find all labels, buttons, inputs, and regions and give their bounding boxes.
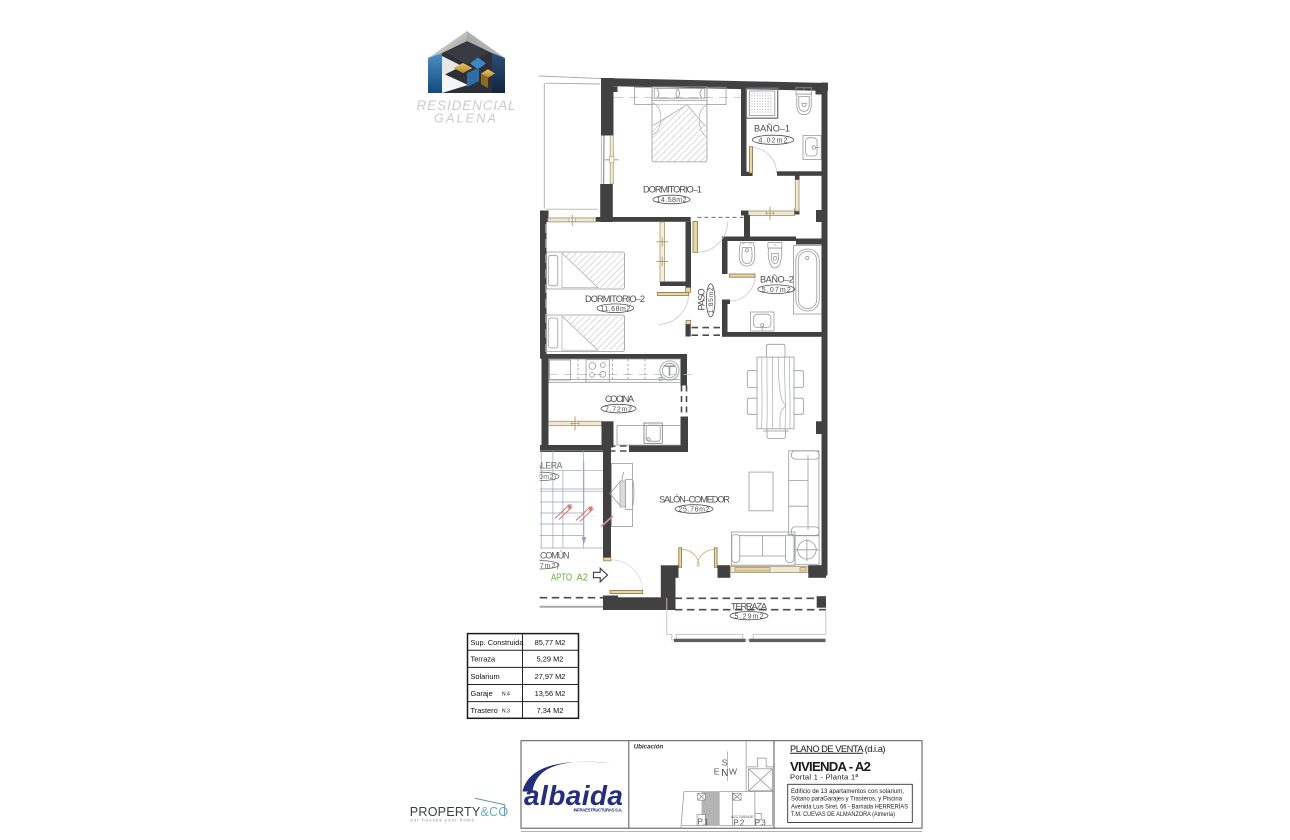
svg-text:11.68m2: 11.68m2 bbox=[600, 306, 630, 313]
svg-text:7,34 M2: 7,34 M2 bbox=[537, 706, 564, 715]
svg-text:N.4: N.4 bbox=[502, 692, 510, 698]
svg-text:AZC GARAJE: AZC GARAJE bbox=[731, 815, 754, 819]
svg-text:Garaje: Garaje bbox=[471, 689, 493, 698]
svg-text:our houses your home: our houses your home bbox=[410, 817, 475, 822]
svg-text:7m2): 7m2) bbox=[540, 563, 559, 570]
svg-text:S: S bbox=[722, 757, 728, 767]
svg-text:85,77 M2: 85,77 M2 bbox=[535, 638, 566, 647]
svg-text:Solarium: Solarium bbox=[471, 672, 500, 681]
svg-text:COCINA: COCINA bbox=[605, 394, 635, 404]
svg-text:5,29 M2: 5,29 M2 bbox=[537, 655, 564, 664]
svg-text:P.1: P.1 bbox=[698, 818, 710, 827]
svg-text:27,97 M2: 27,97 M2 bbox=[535, 672, 566, 681]
svg-text:P.3: P.3 bbox=[755, 818, 767, 827]
svg-text:TERRAZA: TERRAZA bbox=[731, 602, 768, 612]
svg-text:BAÑO–2: BAÑO–2 bbox=[760, 275, 794, 285]
svg-text:Ubicación: Ubicación bbox=[634, 743, 664, 750]
svg-text:Trastero: Trastero bbox=[471, 706, 498, 715]
svg-text:DORMITORIO–2: DORMITORIO–2 bbox=[585, 294, 645, 304]
svg-text:14.58m2: 14.58m2 bbox=[657, 197, 687, 204]
svg-text:5.29m2: 5.29m2 bbox=[735, 613, 764, 620]
svg-text:DORMITORIO–1: DORMITORIO–1 bbox=[643, 185, 702, 195]
svg-text:COMÚN: COMÚN bbox=[540, 550, 570, 560]
svg-text:7.72m2: 7.72m2 bbox=[605, 406, 632, 413]
svg-text:Edificio de 13 apartamentos co: Edificio de 13 apartamentos con solarium… bbox=[791, 788, 904, 795]
svg-text:4.02m2: 4.02m2 bbox=[759, 138, 788, 145]
svg-text:25.76m2: 25.76m2 bbox=[679, 507, 710, 514]
svg-text:5.07m2: 5.07m2 bbox=[762, 287, 791, 294]
svg-text:GALENA: GALENA bbox=[434, 112, 496, 126]
svg-text:W: W bbox=[729, 767, 737, 777]
svg-text:Terraza: Terraza bbox=[471, 655, 497, 664]
svg-text:E: E bbox=[714, 767, 720, 777]
svg-text:A2: A2 bbox=[577, 573, 589, 584]
svg-text:BAÑO–1: BAÑO–1 bbox=[754, 124, 790, 134]
svg-text:PLANO DE VENTA (d.i.a): PLANO DE VENTA (d.i.a) bbox=[790, 744, 886, 754]
svg-text:SALÓN–COMEDOR: SALÓN–COMEDOR bbox=[659, 494, 730, 504]
svg-text:Sótano paraGarajes y Trasteros: Sótano paraGarajes y Trasteros, y Piscin… bbox=[791, 796, 902, 803]
svg-text:T.M. CUEVAS DE ALMANZORA (Alme: T.M. CUEVAS DE ALMANZORA (Almería) bbox=[791, 811, 895, 818]
svg-text:P.2: P.2 bbox=[733, 818, 745, 827]
svg-text:13,56 M2: 13,56 M2 bbox=[535, 689, 566, 698]
svg-text:INFRAESTRUCTURAS S.A.: INFRAESTRUCTURAS S.A. bbox=[574, 807, 623, 812]
svg-text:1.85m2: 1.85m2 bbox=[708, 287, 715, 313]
svg-text:PASO: PASO bbox=[697, 289, 707, 311]
svg-text:Portal 1 - Planta 1ª: Portal 1 - Planta 1ª bbox=[790, 772, 858, 781]
svg-text:APTO: APTO bbox=[551, 573, 572, 584]
svg-text:Avenida Luis Siret, 66 - Barri: Avenida Luis Siret, 66 - Barriada HERRER… bbox=[791, 801, 908, 810]
svg-text:N.3: N.3 bbox=[502, 709, 510, 715]
svg-text:Sup. Construida: Sup. Construida bbox=[471, 638, 525, 647]
